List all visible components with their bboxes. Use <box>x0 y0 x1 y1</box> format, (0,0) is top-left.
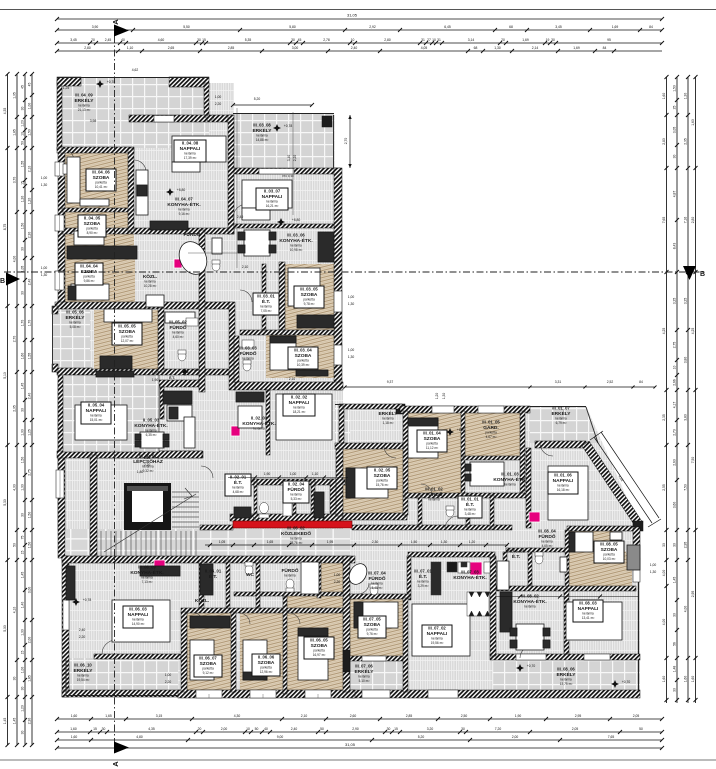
svg-text:+0,00: +0,00 <box>192 368 201 372</box>
svg-text:2,35: 2,35 <box>684 138 688 145</box>
svg-text:18,21 m²: 18,21 m² <box>293 410 306 414</box>
svg-text:1,40: 1,40 <box>21 602 25 609</box>
svg-text:+0,70: +0,70 <box>622 680 631 684</box>
svg-text:III_05_05: III_05_05 <box>118 323 136 328</box>
svg-text:2,40: 2,40 <box>291 727 298 731</box>
svg-text:8,75: 8,75 <box>3 224 7 231</box>
svg-text:5,20: 5,20 <box>254 97 261 101</box>
svg-text:2,20: 2,20 <box>334 580 341 584</box>
svg-text:III_01_04: III_01_04 <box>423 430 441 435</box>
svg-text:15,76 m²: 15,76 m² <box>376 483 389 487</box>
svg-text:3,31: 3,31 <box>555 380 562 384</box>
svg-text:1,30: 1,30 <box>21 484 25 491</box>
svg-text:2,95: 2,95 <box>575 714 582 718</box>
svg-text:10: 10 <box>21 132 25 136</box>
svg-text:38,76 m²: 38,76 m² <box>290 541 303 545</box>
svg-text:III_07_01: III_07_01 <box>414 568 432 573</box>
svg-text:10,41 m²: 10,41 m² <box>95 185 108 189</box>
svg-text:III_07_02: III_07_02 <box>428 625 446 630</box>
svg-text:parketta: parketta <box>376 478 388 482</box>
svg-text:III_07_04: III_07_04 <box>368 570 386 575</box>
svg-text:1,65: 1,65 <box>105 714 112 718</box>
svg-text:1,65: 1,65 <box>267 540 274 544</box>
svg-text:15: 15 <box>93 727 97 731</box>
svg-text:kerámia: kerámia <box>284 573 296 577</box>
svg-text:kerámia: kerámia <box>582 611 594 615</box>
svg-text:5,40 m²: 5,40 m² <box>372 586 383 590</box>
svg-text:5,10 m²: 5,10 m² <box>359 679 370 683</box>
svg-text:4,68 m²: 4,68 m² <box>233 490 244 494</box>
svg-text:3,80: 3,80 <box>684 357 688 364</box>
svg-text:kerámia: kerámia <box>290 536 302 540</box>
svg-text:2,20: 2,20 <box>165 680 172 684</box>
svg-text:kerámia: kerámia <box>560 677 572 681</box>
svg-text:1,45: 1,45 <box>3 718 7 725</box>
svg-text:30: 30 <box>21 687 25 691</box>
svg-text:10: 10 <box>351 38 355 42</box>
svg-text:1,50: 1,50 <box>21 223 25 230</box>
svg-text:40: 40 <box>264 727 268 731</box>
svg-text:20: 20 <box>198 727 202 731</box>
svg-text:20: 20 <box>501 38 505 42</box>
svg-text:1,05: 1,05 <box>219 540 226 544</box>
svg-text:2,80: 2,80 <box>691 217 695 224</box>
svg-text:2,00: 2,00 <box>512 735 519 739</box>
svg-text:3,70: 3,70 <box>13 177 17 184</box>
svg-text:parketta: parketta <box>260 665 272 669</box>
svg-text:2,20: 2,20 <box>144 463 151 467</box>
svg-text:2,78: 2,78 <box>323 38 330 42</box>
svg-text:3,80: 3,80 <box>684 414 688 421</box>
svg-text:III_01_07: III_01_07 <box>552 405 570 410</box>
svg-text:2,95: 2,95 <box>691 591 695 598</box>
svg-text:10: 10 <box>246 727 250 731</box>
svg-text:14,88 m²: 14,88 m² <box>256 138 269 142</box>
svg-text:2,30: 2,30 <box>28 232 32 239</box>
svg-text:2,40: 2,40 <box>237 215 244 219</box>
svg-text:1,55: 1,55 <box>28 353 32 360</box>
svg-text:30: 30 <box>197 38 201 42</box>
svg-text:III_08_03: III_08_03 <box>579 600 597 605</box>
svg-text:5,80: 5,80 <box>289 25 296 29</box>
svg-text:2,10: 2,10 <box>242 265 249 269</box>
svg-text:2,20: 2,20 <box>215 102 222 106</box>
svg-text:2,85: 2,85 <box>228 46 235 50</box>
svg-text:1,50: 1,50 <box>21 457 25 464</box>
svg-text:III_04_09: III_04_09 <box>75 92 93 97</box>
svg-text:6,35 m²: 6,35 m² <box>146 433 157 437</box>
svg-text:kerámia: kerámia <box>145 428 157 432</box>
svg-text:31: 31 <box>421 38 425 42</box>
svg-text:III_06_10: III_06_10 <box>74 662 92 667</box>
svg-text:1,10: 1,10 <box>312 472 319 476</box>
svg-text:75: 75 <box>21 536 25 540</box>
svg-text:9,12 m²: 9,12 m² <box>203 671 214 675</box>
svg-text:3,20: 3,20 <box>427 727 434 731</box>
svg-text:1,00: 1,00 <box>215 95 222 99</box>
svg-text:1,05: 1,05 <box>21 266 25 273</box>
svg-text:parketta: parketta <box>202 666 214 670</box>
svg-text:kerámia: kerámia <box>428 497 440 501</box>
svg-text:1,85: 1,85 <box>13 129 17 136</box>
svg-text:5,30: 5,30 <box>3 499 7 506</box>
svg-text:50: 50 <box>21 141 25 145</box>
svg-text:1,69: 1,69 <box>522 38 529 42</box>
svg-text:1,60: 1,60 <box>21 353 25 360</box>
svg-text:kerámia: kerámia <box>290 492 302 496</box>
svg-text:3,25: 3,25 <box>673 298 677 305</box>
svg-text:4,67 m²: 4,67 m² <box>486 435 497 439</box>
svg-text:2,40: 2,40 <box>28 279 32 286</box>
svg-text:30: 30 <box>387 727 391 731</box>
svg-text:68: 68 <box>474 46 478 50</box>
svg-text:1,30: 1,30 <box>684 93 688 100</box>
svg-text:15: 15 <box>21 651 25 655</box>
svg-text:30: 30 <box>291 38 295 42</box>
svg-text:16,97 m²: 16,97 m² <box>313 653 326 657</box>
svg-text:1,30: 1,30 <box>442 393 446 400</box>
svg-text:9,86 m²: 9,86 m² <box>84 279 95 283</box>
svg-text:1,60: 1,60 <box>691 676 695 683</box>
svg-text:kerámia: kerámia <box>242 356 254 360</box>
svg-text:1,90: 1,90 <box>152 378 159 382</box>
svg-text:15,01 m²: 15,01 m² <box>90 418 103 422</box>
svg-text:II_06_01: II_06_01 <box>205 568 222 573</box>
svg-text:É.T.: É.T. <box>169 375 175 380</box>
svg-text:9,16 m²: 9,16 m² <box>179 212 190 216</box>
svg-text:45: 45 <box>28 83 32 87</box>
svg-text:kerámia: kerámia <box>382 416 394 420</box>
svg-text:kerámia: kerámia <box>253 426 265 430</box>
svg-text:1,69: 1,69 <box>612 25 619 29</box>
svg-text:2,80: 2,80 <box>84 46 91 50</box>
svg-text:2,95: 2,95 <box>684 542 688 549</box>
svg-text:1,85: 1,85 <box>28 675 32 682</box>
svg-text:2,65: 2,65 <box>168 46 175 50</box>
svg-text:kerámia: kerámia <box>184 151 196 155</box>
svg-text:1,50: 1,50 <box>28 512 32 519</box>
svg-text:15: 15 <box>21 181 25 185</box>
svg-text:kerámia: kerámia <box>90 413 102 417</box>
svg-text:III_06_03: III_06_03 <box>129 606 147 611</box>
svg-text:84: 84 <box>639 380 643 384</box>
svg-text:2,80: 2,80 <box>662 138 666 145</box>
svg-text:kerámia: kerámia <box>293 405 305 409</box>
svg-text:II_02_02: II_02_02 <box>291 394 308 399</box>
svg-text:30: 30 <box>673 543 677 547</box>
svg-text:A: A <box>111 19 120 25</box>
svg-text:parketta: parketta <box>297 358 309 362</box>
svg-text:III_08_04: III_08_04 <box>538 528 556 533</box>
svg-text:16,21 m²: 16,21 m² <box>266 204 279 208</box>
svg-text:III_07_06: III_07_06 <box>355 663 373 668</box>
svg-text:III_07_05: III_07_05 <box>363 616 381 621</box>
svg-text:4,80: 4,80 <box>136 735 143 739</box>
svg-text:45: 45 <box>21 85 25 89</box>
svg-text:1,20: 1,20 <box>28 198 32 205</box>
svg-text:III_06_02: III_06_02 <box>287 525 305 530</box>
svg-text:4,00: 4,00 <box>662 619 666 626</box>
svg-text:kerámia: kerámia <box>178 207 190 211</box>
svg-text:3,25: 3,25 <box>684 298 688 305</box>
svg-text:5,20: 5,20 <box>418 735 425 739</box>
svg-text:30: 30 <box>551 38 555 42</box>
svg-text:1,80: 1,80 <box>137 470 144 474</box>
svg-text:56: 56 <box>673 642 677 646</box>
svg-text:19,56 m²: 19,56 m² <box>431 641 444 645</box>
svg-text:1,10: 1,10 <box>127 46 134 50</box>
svg-text:4,10: 4,10 <box>13 607 17 614</box>
svg-text:68: 68 <box>509 25 513 29</box>
svg-text:50: 50 <box>639 727 643 731</box>
svg-text:parketta: parketta <box>366 627 378 631</box>
svg-text:III_08_01: III_08_01 <box>507 548 525 553</box>
svg-text:10,03 m²: 10,03 m² <box>603 557 616 561</box>
svg-text:KÖZL.: KÖZL. <box>195 597 209 604</box>
svg-text:10,28 m²: 10,28 m² <box>144 284 157 288</box>
svg-text:2,75: 2,75 <box>673 342 677 349</box>
svg-text:50: 50 <box>255 727 259 731</box>
svg-text:25: 25 <box>673 106 677 110</box>
svg-text:1,30: 1,30 <box>21 629 25 636</box>
svg-text:1,20: 1,20 <box>435 393 439 400</box>
svg-text:30: 30 <box>13 677 17 681</box>
svg-text:II_06_06: II_06_06 <box>258 654 275 659</box>
svg-text:2,40: 2,40 <box>351 46 358 50</box>
svg-text:3,98: 3,98 <box>90 119 97 123</box>
svg-text:1,70: 1,70 <box>21 320 25 327</box>
svg-text:8,43: 8,43 <box>673 243 677 250</box>
svg-text:30: 30 <box>21 731 25 735</box>
svg-text:2,85: 2,85 <box>406 714 413 718</box>
svg-text:1,30: 1,30 <box>41 273 48 277</box>
svg-text:4,25: 4,25 <box>691 328 695 335</box>
svg-text:50: 50 <box>13 543 17 547</box>
svg-text:kerámia: kerámia <box>358 674 370 678</box>
svg-text:1,50: 1,50 <box>28 129 32 136</box>
svg-text:1,55: 1,55 <box>21 161 25 168</box>
svg-text:+0,70: +0,70 <box>527 664 536 668</box>
svg-text:11,12 m²: 11,12 m² <box>426 446 438 450</box>
svg-text:kerámia: kerámia <box>266 199 278 203</box>
svg-text:4,87: 4,87 <box>673 191 677 198</box>
svg-text:9,32 m²: 9,32 m² <box>143 469 154 473</box>
svg-text:1,00: 1,00 <box>165 673 172 677</box>
svg-text:III_06_09: III_06_09 <box>138 564 156 569</box>
svg-text:1,00: 1,00 <box>152 371 159 375</box>
svg-text:kerámia: kerámia <box>290 243 302 247</box>
svg-text:3,45: 3,45 <box>70 38 77 42</box>
svg-text:kerámia: kerámia <box>504 482 516 486</box>
svg-text:2,10: 2,10 <box>301 714 308 718</box>
svg-text:4,30: 4,30 <box>234 714 241 718</box>
svg-text:+8,80: +8,80 <box>177 188 186 192</box>
svg-text:2,60: 2,60 <box>211 115 215 122</box>
svg-text:4,00: 4,00 <box>13 484 17 491</box>
svg-text:1,60: 1,60 <box>662 93 666 100</box>
svg-text:31,05: 31,05 <box>347 13 358 18</box>
svg-text:1,70: 1,70 <box>28 320 32 327</box>
svg-text:1,30: 1,30 <box>494 46 501 50</box>
svg-text:1,45: 1,45 <box>13 718 17 725</box>
svg-text:2,30: 2,30 <box>372 540 379 544</box>
svg-text:kerámia: kerámia <box>172 330 184 334</box>
svg-text:III_03_08: III_03_08 <box>253 122 271 127</box>
svg-text:8,90 m²: 8,90 m² <box>87 231 98 235</box>
svg-text:+0,78: +0,78 <box>83 598 92 602</box>
svg-text:1,45: 1,45 <box>673 577 677 584</box>
svg-text:III_06_05: III_06_05 <box>310 637 328 642</box>
svg-text:2,10: 2,10 <box>28 166 32 173</box>
svg-text:31,05: 31,05 <box>345 742 356 747</box>
svg-text:kerámia: kerámia <box>557 483 569 487</box>
svg-text:2,55: 2,55 <box>662 484 666 491</box>
svg-text:2,70: 2,70 <box>673 429 677 436</box>
svg-text:4,65 m²: 4,65 m² <box>542 544 553 548</box>
svg-text:1,30: 1,30 <box>650 570 657 574</box>
svg-text:III_01_01: III_01_01 <box>461 496 479 501</box>
svg-text:parketta: parketta <box>603 552 615 556</box>
svg-text:4,05: 4,05 <box>421 46 428 50</box>
svg-text:1,95: 1,95 <box>327 540 334 544</box>
svg-text:III_03_05: III_03_05 <box>300 286 318 291</box>
svg-text:17,39 m²: 17,39 m² <box>184 156 197 160</box>
svg-text:1,00: 1,00 <box>21 667 25 674</box>
svg-text:19: 19 <box>546 38 550 42</box>
svg-text:II_02_03: II_02_03 <box>251 415 268 420</box>
svg-text:parketta: parketta <box>313 648 325 652</box>
svg-text:B: B <box>700 271 705 278</box>
svg-text:kerámia: kerámia <box>132 617 144 621</box>
svg-text:2,60: 2,60 <box>350 714 357 718</box>
svg-text:2,20: 2,20 <box>205 115 209 122</box>
svg-text:1,00: 1,00 <box>290 472 297 476</box>
svg-text:1,60: 1,60 <box>70 727 77 731</box>
svg-text:II_05_04: II_05_04 <box>88 402 105 407</box>
svg-text:1,30: 1,30 <box>348 302 355 306</box>
svg-text:15: 15 <box>202 38 206 42</box>
svg-text:parketta: parketta <box>86 226 98 230</box>
svg-text:parketta: parketta <box>95 180 107 184</box>
svg-text:1,20: 1,20 <box>469 540 476 544</box>
svg-text:2,40: 2,40 <box>79 628 86 632</box>
svg-text:kerámia: kerámia <box>69 320 81 324</box>
svg-text:kerámia: kerámia <box>144 279 156 283</box>
svg-text:2,30: 2,30 <box>28 718 32 725</box>
svg-text:20: 20 <box>91 38 95 42</box>
svg-text:3,60: 3,60 <box>673 502 677 509</box>
svg-text:1,60: 1,60 <box>71 735 78 739</box>
svg-text:1,45: 1,45 <box>21 383 25 390</box>
svg-text:30: 30 <box>673 613 677 617</box>
svg-text:kerámia: kerámia <box>78 103 90 107</box>
svg-text:2,60: 2,60 <box>673 459 677 466</box>
svg-text:II_02_01: II_02_01 <box>230 474 247 479</box>
svg-text:7,13 m²: 7,13 m² <box>142 580 153 584</box>
svg-text:30: 30 <box>662 543 666 547</box>
svg-text:30: 30 <box>21 408 25 412</box>
svg-text:4,00: 4,00 <box>684 606 688 613</box>
svg-text:15: 15 <box>21 551 25 555</box>
svg-text:1,60: 1,60 <box>71 714 78 718</box>
svg-text:III_07_03: III_07_03 <box>461 569 479 574</box>
svg-text:7,65: 7,65 <box>608 735 615 739</box>
svg-text:30: 30 <box>461 727 465 731</box>
svg-text:III_04_07: III_04_07 <box>175 196 193 201</box>
svg-text:III_03_06: III_03_06 <box>287 232 305 237</box>
svg-text:2,20: 2,20 <box>293 155 297 162</box>
svg-text:2,75: 2,75 <box>28 469 32 476</box>
svg-text:1,00: 1,00 <box>650 563 657 567</box>
svg-text:2,00: 2,00 <box>28 637 32 644</box>
svg-text:6,79 m²: 6,79 m² <box>556 421 567 425</box>
svg-text:1,00: 1,00 <box>28 103 32 110</box>
svg-text:31: 31 <box>437 38 441 42</box>
svg-text:1,25: 1,25 <box>28 429 32 436</box>
svg-text:45: 45 <box>298 38 302 42</box>
svg-text:5,33 m²: 5,33 m² <box>291 497 302 501</box>
svg-text:9,37: 9,37 <box>387 380 394 384</box>
svg-text:30: 30 <box>102 727 106 731</box>
svg-text:30: 30 <box>21 291 25 295</box>
svg-text:III_03_01: III_03_01 <box>257 293 275 298</box>
svg-text:kerámia: kerámia <box>77 673 89 677</box>
svg-text:7,05 m²: 7,05 m² <box>261 309 272 313</box>
svg-text:7,20: 7,20 <box>495 727 502 731</box>
svg-text:2,45: 2,45 <box>105 38 112 42</box>
svg-text:1,60: 1,60 <box>691 119 695 126</box>
svg-text:1,30: 1,30 <box>348 355 355 359</box>
svg-text:II_03_07: II_03_07 <box>264 188 281 193</box>
svg-text:10,39 m²: 10,39 m² <box>297 363 310 367</box>
svg-text:95: 95 <box>607 38 611 42</box>
svg-text:84: 84 <box>603 46 607 50</box>
svg-text:II_02_04: II_02_04 <box>288 481 305 486</box>
svg-text:7,65: 7,65 <box>662 217 666 224</box>
svg-text:2,14: 2,14 <box>532 46 539 50</box>
svg-text:27: 27 <box>427 38 431 42</box>
svg-text:III_08_05: III_08_05 <box>600 541 618 546</box>
svg-text:12,07 m²: 12,07 m² <box>121 339 134 343</box>
svg-text:19,54 m²: 19,54 m² <box>77 678 90 682</box>
svg-text:3,05: 3,05 <box>673 127 677 134</box>
svg-text:30: 30 <box>21 513 25 517</box>
svg-text:2,05: 2,05 <box>572 727 579 731</box>
svg-text:3,48 m²: 3,48 m² <box>465 512 476 516</box>
svg-text:2,80: 2,80 <box>384 38 391 42</box>
svg-text:12,96 m²: 12,96 m² <box>260 670 273 674</box>
svg-text:WC: WC <box>246 572 255 578</box>
svg-text:4,00: 4,00 <box>662 570 666 577</box>
svg-text:PFt 0,30: PFt 0,30 <box>282 174 294 178</box>
svg-text:1,00: 1,00 <box>348 295 355 299</box>
svg-text:2,66: 2,66 <box>673 379 677 386</box>
svg-text:16,18 m²: 16,18 m² <box>557 488 570 492</box>
svg-text:1,05: 1,05 <box>13 92 17 99</box>
svg-text:1,45: 1,45 <box>21 572 25 579</box>
svg-text:1,69: 1,69 <box>573 46 580 50</box>
svg-text:kerámia: kerámia <box>541 539 553 543</box>
svg-text:1,20: 1,20 <box>21 120 25 127</box>
svg-text:II_04_05: II_04_05 <box>84 215 101 220</box>
svg-text:III_08_06: III_08_06 <box>557 666 575 671</box>
svg-text:2,70: 2,70 <box>13 336 17 343</box>
svg-text:III_06_07: III_06_07 <box>199 655 217 660</box>
svg-text:III_01_02: III_01_02 <box>425 486 443 491</box>
svg-text:30: 30 <box>21 247 25 251</box>
svg-text:1,50: 1,50 <box>673 85 677 92</box>
svg-text:3,29 m²: 3,29 m² <box>418 584 429 588</box>
